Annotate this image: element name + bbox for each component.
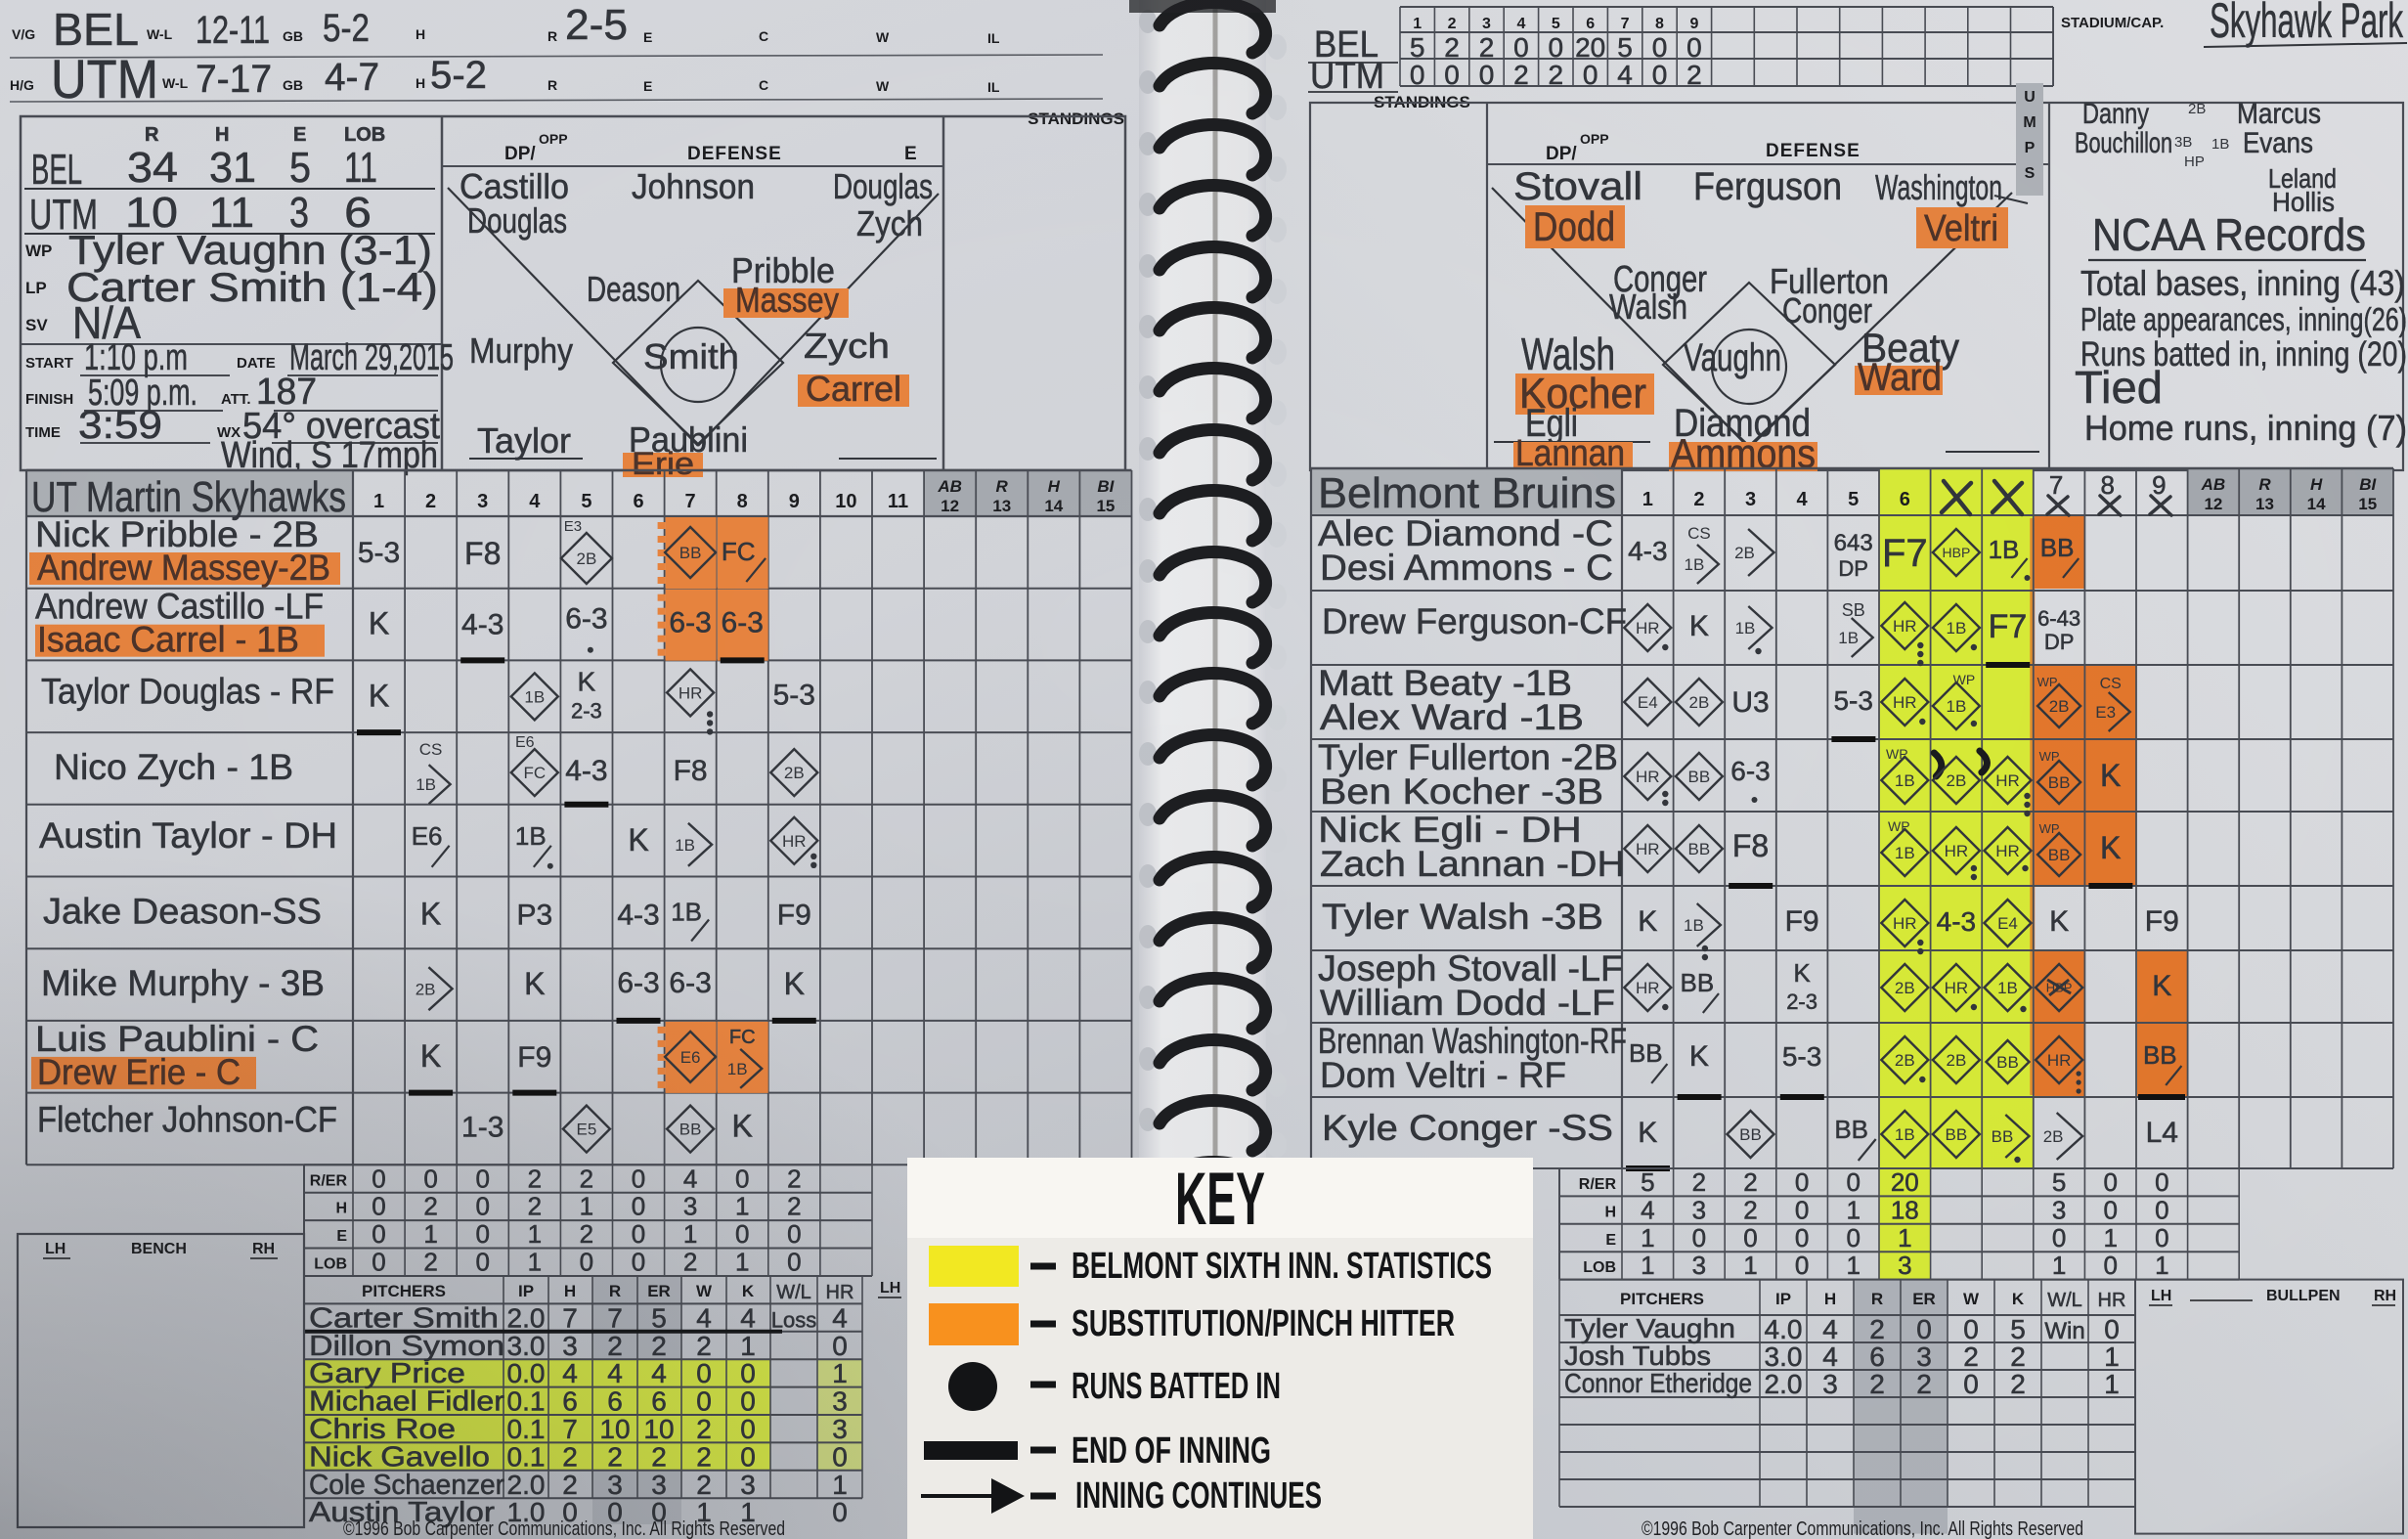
svg-text:RUNS BATTED IN: RUNS BATTED IN	[1072, 1366, 1281, 1407]
svg-text:SUBSTITUTION/PINCH HITTER: SUBSTITUTION/PINCH HITTER	[1072, 1303, 1455, 1344]
svg-text:INNING CONTINUES: INNING CONTINUES	[1075, 1475, 1322, 1517]
svg-text:KEY: KEY	[1175, 1158, 1265, 1241]
svg-text:BELMONT SIXTH INN. STATISTICS: BELMONT SIXTH INN. STATISTICS	[1072, 1246, 1492, 1287]
svg-text:END OF INNING: END OF INNING	[1072, 1430, 1271, 1472]
